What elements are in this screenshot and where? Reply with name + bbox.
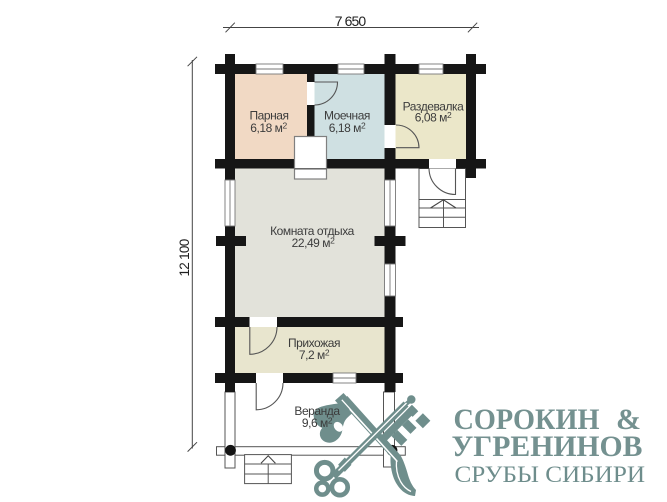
svg-text:УГРЕНИНОВ: УГРЕНИНОВ (452, 430, 643, 463)
svg-text:6,18 м2: 6,18 м2 (250, 121, 287, 136)
svg-text:6,18 м2: 6,18 м2 (329, 121, 366, 136)
svg-text:12 100: 12 100 (177, 239, 192, 276)
svg-text:22,49 м2: 22,49 м2 (292, 236, 335, 251)
svg-text:6,08 м2: 6,08 м2 (415, 110, 452, 125)
svg-text:СРУБЫ СИБИРИ: СРУБЫ СИБИРИ (455, 462, 646, 488)
svg-text:7 650: 7 650 (335, 13, 367, 29)
